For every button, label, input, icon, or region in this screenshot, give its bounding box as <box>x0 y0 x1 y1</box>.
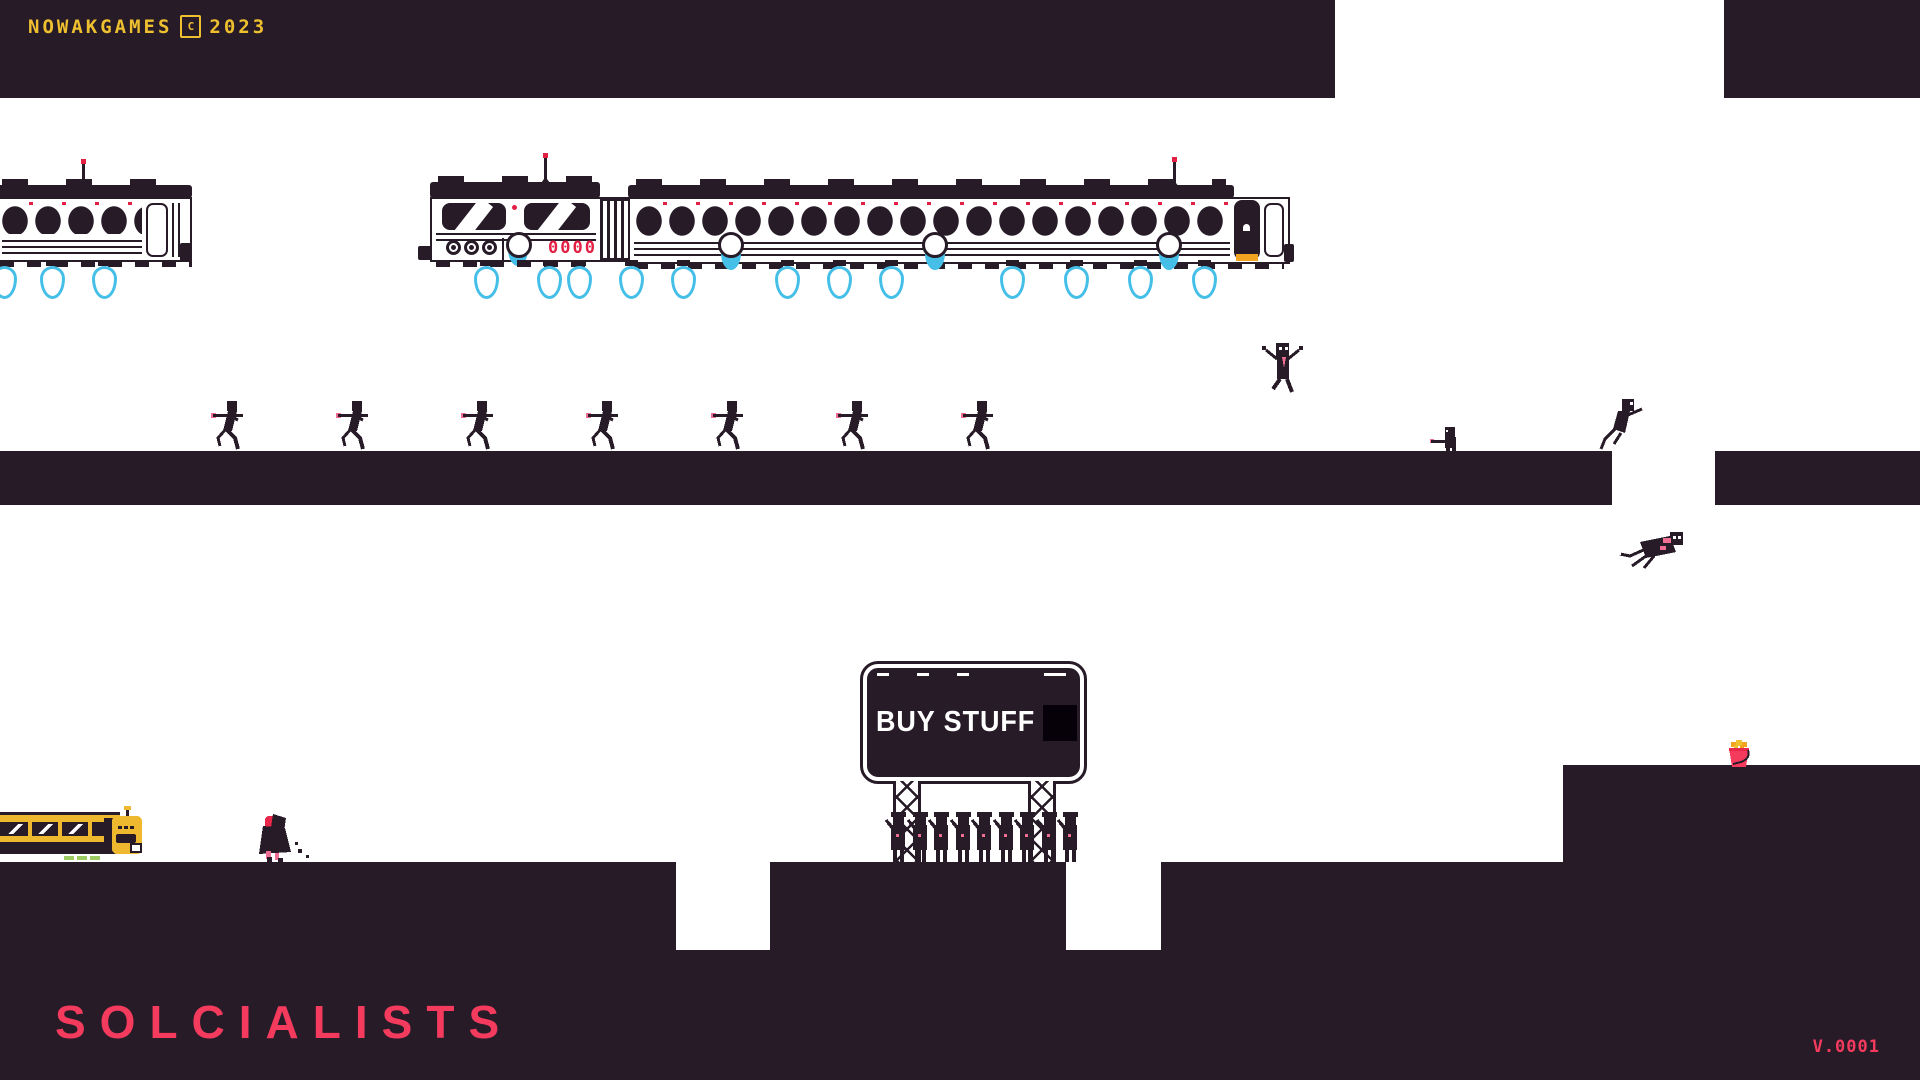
running-soldier <box>961 399 995 453</box>
studio-credit: NOWAKGAMES C 2023 <box>28 15 267 38</box>
copyright-year: 2023 <box>209 16 267 38</box>
thruster-flame-icon <box>1000 266 1025 299</box>
running-soldier <box>461 399 495 453</box>
copyright-icon: C <box>180 15 201 38</box>
red-hooded-runner <box>258 814 294 862</box>
thruster-flame-icon <box>474 266 499 299</box>
thruster-pod <box>922 0 948 40</box>
jumping-figure <box>1262 341 1304 399</box>
wagon-windows <box>634 202 1230 236</box>
left-car-ladder <box>172 203 180 257</box>
undercarriage <box>436 260 596 267</box>
roof-antenna <box>1173 161 1176 185</box>
ground-notch-1 <box>676 862 770 950</box>
platform-strip-right <box>1715 451 1920 505</box>
thruster-pod <box>718 0 744 40</box>
wagon-rear-bumper <box>1284 244 1294 262</box>
thruster-flame-icon <box>619 266 644 299</box>
leaping-figure <box>1598 399 1646 453</box>
loco-digits: 0000 <box>548 238 597 258</box>
wagon-end-frame <box>1264 203 1284 257</box>
thruster-flame-icon <box>1064 266 1089 299</box>
top-bar-right <box>1724 0 1920 98</box>
loco-thruster-pod <box>506 232 532 258</box>
door-step <box>1236 254 1258 261</box>
dust-puff <box>295 842 298 845</box>
thruster-flame-icon <box>671 266 696 299</box>
undercarriage <box>0 260 192 267</box>
thruster-flame-icon <box>567 266 592 299</box>
car-connector <box>600 197 628 262</box>
running-soldier <box>836 399 870 453</box>
loco-roof <box>430 182 600 198</box>
thruster-flame-icon <box>827 266 852 299</box>
yellow-hover-bus <box>0 806 144 862</box>
thruster-flame-icon <box>0 266 17 299</box>
loco-windshield-left <box>442 203 506 230</box>
loco-signal-light <box>512 205 517 210</box>
running-soldier <box>211 399 245 453</box>
thruster-flame-icon <box>775 266 800 299</box>
buy-stuff-billboard[interactable]: BUY STUFF <box>863 664 1084 781</box>
dust-puff <box>306 855 309 858</box>
thruster-flame-icon <box>40 266 65 299</box>
door-emblem <box>1243 224 1250 231</box>
left-car-stripes <box>2 240 142 254</box>
ground-notch-2 <box>1066 862 1161 950</box>
loco-divider <box>502 238 504 260</box>
thruster-flame-icon <box>92 266 117 299</box>
roof-antenna <box>544 157 547 181</box>
falling-figure <box>1618 526 1686 570</box>
running-soldier <box>336 399 370 453</box>
left-car-windows <box>0 202 142 234</box>
loco-windshield-right <box>524 203 590 230</box>
queue-person <box>1056 812 1082 862</box>
billboard-cursor <box>1043 705 1077 741</box>
thruster-flame-icon <box>537 266 562 299</box>
popcorn-bucket <box>1727 740 1751 768</box>
game-scene: NOWAKGAMES C 2023 0000 <box>0 0 1920 1080</box>
running-soldier <box>586 399 620 453</box>
raised-platform <box>1563 765 1920 1080</box>
thruster-pod <box>1156 0 1182 40</box>
thruster-flame-icon <box>1128 266 1153 299</box>
thruster-flame-icon <box>879 266 904 299</box>
left-car-end-door <box>146 203 168 257</box>
studio-name: NOWAKGAMES <box>28 16 172 38</box>
roof-antenna <box>82 163 85 187</box>
running-soldier <box>711 399 745 453</box>
standing-shooter <box>1430 427 1464 453</box>
loco-engine-coils <box>446 240 497 255</box>
version-label: V.0001 <box>1813 1037 1880 1057</box>
billboard-text: BUY STUFF <box>876 706 1035 739</box>
game-title: SOLCIALISTS <box>55 995 513 1049</box>
platform-strip-left <box>0 451 1612 505</box>
dust-puff <box>298 849 302 853</box>
thruster-flame-icon <box>1192 266 1217 299</box>
